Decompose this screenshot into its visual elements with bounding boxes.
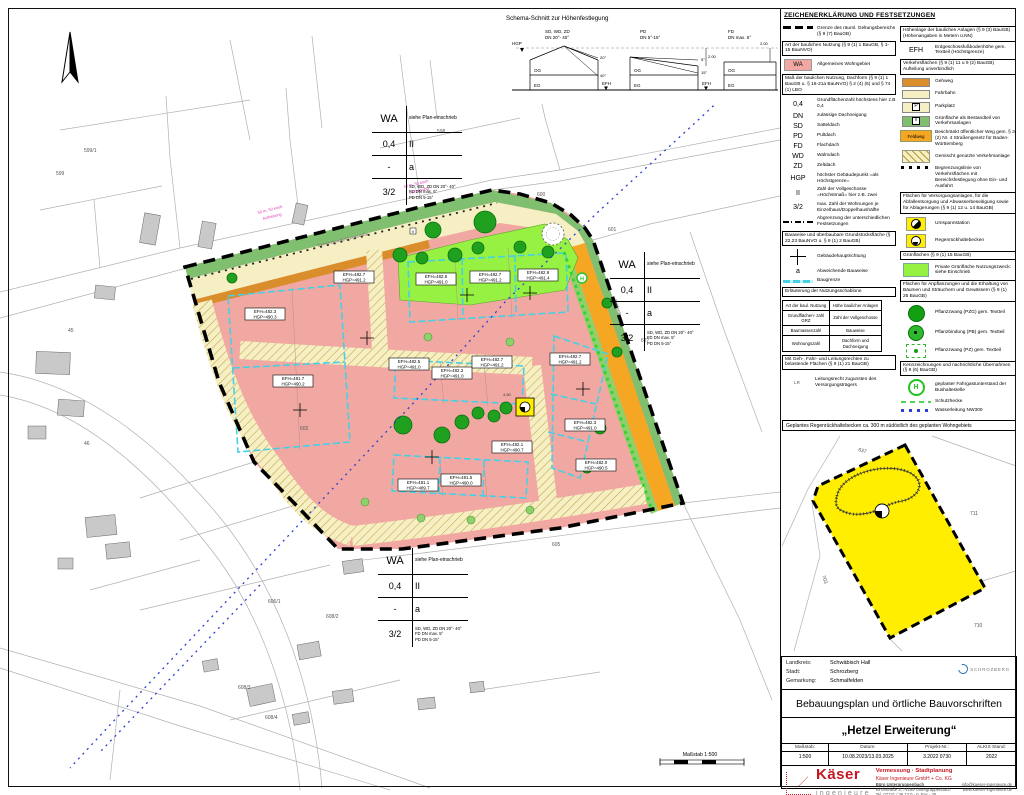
svg-text:703: 703 (820, 575, 828, 585)
legend-label: Gebäudehauptrichtung (817, 254, 866, 260)
schablone-wz: 3/2 (372, 179, 407, 205)
legend-title: ZEICHENERKLÄRUNG UND FESTSETZUNGEN (784, 12, 1016, 19)
schema-section: Schema-Schnitt zur Höhenfestlegung SD, W… (500, 10, 778, 104)
umspann-icon (906, 217, 926, 231)
svg-text:EFH=482.1: EFH=482.1 (501, 442, 524, 447)
title-block-info: Landkreis:Schwäbisch Hall Stadt:Schrozbe… (782, 657, 1016, 690)
legend-label: geplanter Fahrgastunterstand der Bushalt… (935, 382, 1016, 394)
pz-area-icon (906, 344, 926, 358)
panel-divider (780, 8, 781, 787)
company-services: Vermessung · Stadtplanung (876, 768, 1012, 775)
schablone-grz: 0,4 (610, 279, 645, 301)
legend-label: Grenze des räuml. Geltungsbereichs (§ 9 … (817, 26, 896, 38)
svg-text:EFH: EFH (602, 81, 611, 86)
schablone-explainer-table: Art der baul. NutzungHöhe baulicher Anla… (782, 300, 882, 352)
nutzungsschablone-nw: WAsiehe Plan-einschrieb 0,4II -a 3/2SD, … (372, 106, 462, 205)
schablone-wa: WA (372, 106, 407, 132)
svg-text:5°: 5° (701, 57, 705, 62)
legend-label: Grünfläche als Bestandteil von Verkehrsa… (935, 116, 1016, 128)
legend-label: Pflanzbindung (PB) gem. Textteil (935, 330, 1005, 336)
legend-header: Flächen für Versorgungsanlagen, für die … (900, 192, 1016, 213)
hgp-symbol: HGP (782, 175, 814, 182)
legend-label: Gehweg (935, 79, 953, 85)
massstab-value: 1:500 (782, 752, 828, 762)
turning-circle (542, 223, 564, 245)
datum-label: Datum: (829, 744, 907, 752)
svg-text:HGP=491.2: HGP=491.2 (478, 278, 502, 283)
svg-text:H: H (580, 276, 584, 282)
legend-label: Flachdach (817, 143, 839, 149)
legend-label: Schutzhecke (935, 399, 962, 405)
company-details: Vermessung · Stadtplanung Käser Ingenieu… (876, 768, 1012, 795)
pb-tree-icon (908, 325, 924, 341)
svg-text:EFH=481.5: EFH=481.5 (450, 475, 473, 480)
svg-text:HGP=490.0: HGP=490.0 (449, 481, 473, 486)
schablone-wz: 3/2 (610, 325, 645, 351)
private-gruen-swatch-icon (903, 263, 929, 277)
city-logo: SCHROZBERG (958, 664, 1010, 674)
legend-label: Wasserleitung NW300 (935, 408, 983, 414)
nutzungsschablone-s: WAsiehe Plan-einschrieb 0,4II -a 3/2SD, … (378, 548, 468, 647)
legend-label: höchster Gebäudepunkt =als Höchstgrenze= (817, 173, 896, 185)
svg-text:OG: OG (534, 68, 542, 73)
direction-cross-icon (790, 249, 806, 265)
kaeser-sub: ingenieure (816, 790, 871, 795)
legend-label: Zahl der Vollgeschosse =Höchstmaß= hier … (817, 187, 896, 199)
nutzungsschablone-e: WAsiehe Plan-einschrieb 0,4II -a 3/2SD, … (610, 252, 700, 351)
basin-symbol (875, 504, 889, 518)
gruen-verkehr-swatch-icon: V (902, 116, 930, 127)
wa-swatch-icon: WA (784, 59, 812, 71)
svg-text:EFH=482.3: EFH=482.3 (574, 420, 597, 425)
svg-text:OG: OG (634, 68, 642, 73)
legend-label: Erdgeschossfußbodenhöhe gem. Textteil (H… (935, 45, 1016, 57)
schablone-roof: SD, WD, ZD DN 20°- 40°FD DN max. 5°PD DN… (413, 621, 468, 647)
inset-svg: 711 710 637 703 (782, 431, 1016, 651)
dn-symbol: DN (782, 113, 814, 120)
svg-text:EFH=482.7: EFH=482.7 (559, 354, 582, 359)
svg-text:HGP=491.2: HGP=491.2 (558, 360, 582, 365)
trafo-dim: 4.50 (503, 392, 512, 397)
gemischt-swatch-icon (902, 150, 930, 163)
plan-title: Bebauungsplan und örtliche Bauvorschrift… (782, 690, 1016, 718)
feldweg-swatch-icon: Feldweg (900, 130, 932, 142)
svg-text:710: 710 (974, 623, 983, 629)
svg-text:711: 711 (970, 511, 978, 517)
svg-text:EFH=481.1: EFH=481.1 (407, 480, 430, 485)
svg-text:HGP=490.7: HGP=490.7 (500, 448, 524, 453)
company-office-block: Büro Untergruppenbach Kirchstraße 3, 741… (876, 782, 951, 795)
legend-header: Art der baulichen Nutzung (§ 9 (1) 1 Bau… (782, 41, 896, 57)
svg-text:FD: FD (728, 29, 735, 34)
wasser-line-icon (901, 409, 931, 412)
projekt-value: 3.2022 0730 (908, 752, 966, 762)
grz-symbol: 0,4 (782, 101, 814, 108)
svg-text:HGP=490.5: HGP=490.5 (584, 466, 608, 471)
legend-label: Beschränkt öffentlicher Weg gem. § 3 (2)… (935, 130, 1016, 147)
stadt-label: Stadt: (786, 668, 830, 677)
svg-text:OG: OG (728, 68, 736, 73)
svg-text:EFH: EFH (702, 81, 711, 86)
schablone-roof: SD, WD, ZD DN 20°- 40°FD DN max. 5°PD DN… (407, 179, 462, 205)
svg-text:Maßstab 1:500: Maßstab 1:500 (683, 752, 718, 758)
datum-value: 10.08.2023/13.03.2025 (829, 752, 907, 762)
fahrbahn-swatch-icon (902, 90, 930, 99)
schablone-grz: 0,4 (372, 133, 407, 155)
svg-text:599: 599 (56, 171, 65, 177)
alkis-label: ALKIS Stand: (967, 744, 1016, 752)
wd-symbol: WD (782, 153, 814, 160)
svg-text:HGP=491.0: HGP=491.0 (440, 374, 464, 379)
schablone-note: siehe Plan-einschrieb (407, 106, 462, 132)
svg-text:HGP=489.7: HGP=489.7 (406, 486, 430, 491)
city-logo-text: SCHROZBERG (970, 667, 1010, 672)
svg-text:EG: EG (728, 83, 735, 88)
svg-text:605: 605 (552, 542, 561, 548)
legend-label: Fahrbahn (935, 91, 956, 97)
alkis-value: 2022 (967, 752, 1016, 762)
kaeser-logo-text: Käser ingenieure (816, 767, 871, 795)
svg-text:608/2: 608/2 (326, 614, 339, 620)
bus-stop-legend-icon: H (908, 379, 925, 396)
legend-label: Regenrückhaltebecken (935, 238, 984, 244)
legend-label: Pultdach (817, 133, 836, 139)
legend-left-column: Grenze des räuml. Geltungsbereichs (§ 9 … (782, 23, 896, 417)
company-logo-row: Käser ingenieure Vermessung · Stadtplanu… (782, 766, 1016, 795)
svg-text:606/1: 606/1 (268, 599, 281, 605)
svg-text:599/1: 599/1 (84, 148, 97, 154)
svg-text:602: 602 (300, 426, 309, 432)
svg-text:HGP=490.3: HGP=490.3 (253, 315, 277, 320)
svg-text:HGP=491.0: HGP=491.0 (424, 280, 448, 285)
svg-text:20°: 20° (600, 55, 606, 60)
svg-text:2.00: 2.00 (708, 54, 717, 59)
schablone-bauweise: a (645, 302, 700, 324)
legend-header: Kennzeichnungen und nachrichtliche Übern… (900, 361, 1016, 377)
schablone-note: siehe Plan-einschrieb (645, 252, 700, 278)
legend-label: Begrenzungslinie von Verkehrsflächen mit… (935, 166, 1016, 189)
svg-text:46: 46 (84, 441, 90, 447)
svg-text:EFH=482.3: EFH=482.3 (254, 309, 277, 314)
svg-text:EFH=482.7: EFH=482.7 (481, 357, 504, 362)
ii-symbol: II (782, 190, 814, 197)
schablone-wa: WA (378, 548, 413, 574)
svg-text:HGP=491.2: HGP=491.2 (480, 363, 504, 368)
schablone-floors: II (645, 279, 700, 301)
legend-label: Gemischt genutzte Verkehrsanlage (935, 154, 1010, 160)
hecke-line-icon (901, 401, 931, 403)
sd-symbol: SD (782, 123, 814, 130)
efh-symbol: EFH (900, 47, 932, 54)
svg-text:EG: EG (534, 83, 541, 88)
schablone-grz: 0,4 (378, 575, 413, 597)
legend-label: Baugrenze (817, 278, 840, 284)
title-block: Landkreis:Schwäbisch Hall Stadt:Schrozbe… (781, 656, 1017, 789)
massstab-label: Maßstab: (782, 744, 828, 752)
svg-text:DN 20°- 40°: DN 20°- 40° (545, 35, 569, 40)
kaeser-name: Käser (816, 766, 860, 783)
schablone-floors: II (413, 575, 468, 597)
retention-parcel (813, 445, 985, 638)
svg-text:EFH=482.9: EFH=482.9 (527, 270, 550, 275)
schablone-bauweise: a (413, 598, 468, 620)
plan-subtitle: „Hetzel Erweiterung“ (782, 718, 1016, 744)
legend-label: max. Zahl der Wohnungen je Einzelhaus/Do… (817, 202, 896, 214)
pd-symbol: PD (782, 133, 814, 140)
svg-text:EG: EG (634, 83, 641, 88)
fd-symbol: FD (782, 143, 814, 150)
gemarkung-label: Gemarkung: (786, 677, 830, 686)
legend-label: Zeltdach (817, 163, 835, 169)
inset-title: Geplantes Regenrückhaltebecken ca. 300 m… (782, 420, 1016, 431)
svg-text:40°: 40° (600, 73, 606, 78)
schablone-dash: - (372, 156, 407, 178)
svg-text:DN 5°-15°: DN 5°-15° (640, 35, 661, 40)
stadt-value: Schrozberg (830, 668, 858, 677)
legend-header: Mit Geh-, Fahr- und Leitungsrechten zu b… (782, 355, 896, 371)
legend-header: Grünflächen (§ 9 (1) 15 BauGB) (900, 251, 1016, 261)
svg-text:637: 637 (857, 447, 867, 455)
svg-text:PD: PD (640, 29, 647, 34)
legend-label: Abweichende Bauweise (817, 269, 868, 275)
svg-text:608/3: 608/3 (238, 685, 251, 691)
legend-header: Verkehrsflächen (§ 9 (1) 11 u 9 (2) BauG… (900, 59, 1016, 75)
landkreis-label: Landkreis: (786, 659, 830, 668)
svg-text:45: 45 (68, 328, 74, 334)
a-symbol: a (782, 268, 814, 275)
legend-label: Abgrenzung der unterschiedlichen Festset… (817, 216, 896, 228)
boundary-line-icon (783, 26, 813, 29)
meta-table: Maßstab:1:500 Datum:10.08.2023/13.03.202… (782, 744, 1016, 766)
legend-label: Walmdach (817, 153, 839, 159)
svg-text:EFH=482.7: EFH=482.7 (343, 272, 366, 277)
legend-panel: ZEICHENERKLÄRUNG UND FESTSETZUNGEN Grenz… (782, 10, 1016, 418)
legend-label: Pflanzzwang (PZ) gem. Textteil (935, 348, 1001, 354)
parkplatz-swatch-icon: P (902, 102, 930, 113)
zd-symbol: ZD (782, 163, 814, 170)
svg-text:608/4: 608/4 (265, 715, 278, 721)
schablone-dash: - (610, 302, 645, 324)
v-marker: V (412, 229, 415, 234)
schablone-bauweise: a (407, 156, 462, 178)
svg-text:EFH=482.5: EFH=482.5 (425, 274, 448, 279)
kaeser-logo-icon (786, 772, 811, 795)
schablone-roof: SD, WD, ZD DN 20°- 40°FD DN max. 5°PD DN… (645, 325, 700, 351)
schablone-note: siehe Plan-einschrieb (413, 548, 468, 574)
begrenzung-line-icon (901, 166, 931, 169)
svg-text:EFH=482.5: EFH=482.5 (398, 359, 421, 364)
legend-header: Erläuterung der Nutzungsschablone (782, 287, 896, 297)
svg-text:HGP=491.2: HGP=491.2 (342, 278, 366, 283)
city-logo-icon (956, 662, 970, 676)
bus-stop-icon: H (577, 273, 587, 283)
leitungsrecht-icon: LR (782, 373, 812, 392)
gehweg-swatch-icon (902, 78, 930, 87)
schablone-floors: II (407, 133, 462, 155)
legend-label: Satteldach (817, 123, 840, 129)
gemarkung-value: Schmalfelden (830, 677, 863, 686)
legend-header: Maß der baulichen Nutzung, Dachform (§ 9… (782, 74, 896, 95)
svg-text:EFH=481.7: EFH=481.7 (282, 376, 305, 381)
svg-text:HGP=491.0: HGP=491.0 (573, 426, 597, 431)
abgrenzung-line-icon (783, 221, 813, 223)
legend-header: Höhenlage der baulichen Anlagen (§ 9 (3)… (900, 26, 1016, 42)
baugrenze-line-icon (783, 280, 813, 283)
plan-sheet: Grünfläche V (0, 0, 1024, 795)
schablone-wa: WA (610, 252, 645, 278)
legend-header: Flächen für Anpflanzungen und die Erhalt… (900, 280, 1016, 301)
svg-text:EFH=482.0: EFH=482.0 (585, 460, 608, 465)
legend-label: Pflanzzwang (PZG) gem. Textteil (935, 310, 1005, 316)
legend-label: Allgemeines Wohngebiet (817, 62, 870, 68)
svg-text:HGP=491.4: HGP=491.4 (526, 276, 550, 281)
schablone-wz: 3/2 (378, 621, 413, 647)
svg-text:HGP=490.2: HGP=490.2 (281, 382, 305, 387)
svg-text:HGP=491.0: HGP=491.0 (397, 365, 421, 370)
company-website: www.kaeser-ingenieure.de (962, 787, 1012, 792)
svg-text:EFH=482.3: EFH=482.3 (441, 368, 464, 373)
schablone-dash: - (378, 598, 413, 620)
company-contact-block: info@kaeser-ingenieure.de www.kaeser-ing… (962, 782, 1012, 795)
legend-header: Bauweise und überbaubare Grundstücksfläc… (782, 231, 896, 247)
svg-text:601: 601 (608, 227, 617, 233)
projekt-label: Projekt-Nr.: (908, 744, 966, 752)
legend-label: Umspannstation (935, 221, 970, 227)
legend-label: Grundflächenzahl höchstens hier z.B 0,4 (817, 98, 896, 110)
svg-text:HGP: HGP (512, 41, 522, 46)
svg-text:2.00: 2.00 (760, 41, 769, 46)
svg-text:SD, WD, ZD: SD, WD, ZD (545, 29, 570, 34)
inset-panel: Geplantes Regenrückhaltebecken ca. 300 m… (782, 420, 1016, 654)
legend-label: zulässige Dachneigung (817, 113, 867, 119)
pzg-tree-icon (908, 305, 925, 322)
legend-right-column: Höhenlage der baulichen Anlagen (§ 9 (3)… (900, 23, 1016, 417)
svg-text:600: 600 (537, 192, 546, 198)
svg-text:EFH=482.7: EFH=482.7 (479, 272, 502, 277)
svg-text:15°: 15° (701, 70, 707, 75)
legend-label: Parkplatz (935, 104, 955, 110)
landkreis-value: Schwäbisch Hall (830, 659, 870, 668)
svg-text:DN max. 5°: DN max. 5° (728, 35, 751, 40)
legend-label: Leitungsrecht zugunsten des Versorgungst… (815, 377, 896, 389)
regen-icon (906, 234, 926, 248)
wz-symbol: 3/2 (782, 204, 814, 211)
legend-label: Private Grünfläche Nutzungszweck: siehe … (935, 265, 1016, 277)
schema-title: Schema-Schnitt zur Höhenfestlegung (506, 15, 609, 22)
